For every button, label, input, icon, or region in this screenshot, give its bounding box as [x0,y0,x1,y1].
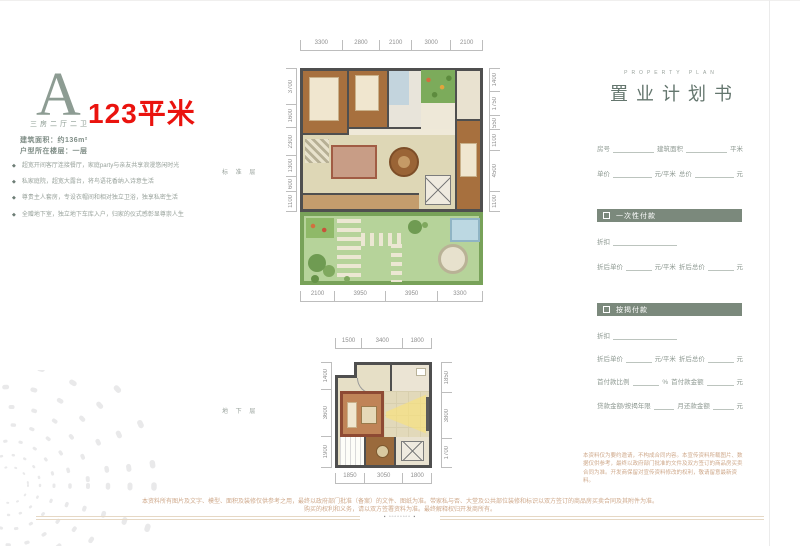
section-title: 一次性付款 [616,211,656,221]
eyebrow-text: PROPERTY PLAN [580,70,762,76]
stepping-stone-path [391,244,402,282]
basement-floor-plan [335,362,432,468]
blank-field [707,378,734,386]
discounted-price-row: 折后单价 元/平米 折后总价 元 [597,353,743,363]
wardrobe [340,437,364,465]
basement-hall [384,391,429,437]
field-label: 建筑面积 [657,143,683,153]
field-label: 折扣 [597,330,610,340]
mortgage-payment-checkbox[interactable] [603,306,610,313]
dining-table [389,147,419,177]
dim-label: 2300 [288,135,294,148]
blank-field [695,170,734,178]
projector-light-cone [386,393,426,435]
dim-label: 1400 [492,73,498,86]
unit-label: 平米 [730,143,743,153]
dim-label: 3950 [354,291,367,298]
discounted-price-row: 折后单价 元/平米 折后总价 元 [597,261,743,271]
blank-field [713,402,734,410]
dim-strip-bottom: 2100 3950 3950 3300 [300,291,483,302]
dim-label: 1800 [411,338,424,345]
bed [355,75,379,111]
dim-label: 1400 [323,369,329,382]
dim-label: 3000 [424,40,437,47]
dim-label: 600 [288,179,294,189]
coffee-table [361,406,377,424]
blank-field [708,355,734,363]
bathroom-1 [389,71,423,129]
price-row: 单价 元/平米 总价 元 [597,168,743,178]
toilet [416,368,426,376]
page-fold-line [769,0,770,546]
field-label: 折后单价 [597,261,623,271]
dim-label: 2100 [389,40,402,47]
mortgage-payment-section-bar: 按揭付款 [597,303,742,316]
basement-bathroom [390,365,429,393]
equipment-room [396,437,429,465]
loan-row: 贷款金额/按揭年限 月还款金额 元 [597,400,743,410]
list-item: ◆尊贵主人套房，专设衣帽间和相对独立卫浴，独享私密生活 [12,195,227,202]
blank-field [613,332,677,340]
dim-label: 550 [492,118,498,128]
dim-label: 3600 [323,406,329,419]
field-label: 折后总价 [679,353,705,363]
field-label: 单价 [597,168,610,178]
dim-strip-top: 1500 3400 1800 [335,338,432,349]
tea-table [376,445,389,458]
dim-label: 1100 [492,195,498,208]
stair-shaft [425,175,451,205]
brochure-page: A 123平米 三房二厅二卫 建筑面积：约136m² 户型所在楼层：一层 ◆超宽… [0,0,800,546]
field-label: 房号 [597,143,610,153]
page-title: 置业计划书 [580,80,762,106]
dim-label: 4500 [492,164,498,177]
bullet-text: 全赠地下室，独立地下车库入户，归家的仪式感彰显尊崇人生 [22,212,184,219]
shrub-cluster [308,254,326,272]
dim-label: 1300 [288,159,294,172]
blank-field [708,263,734,271]
round-patio [438,244,468,274]
unit-type-letter: A [36,64,81,126]
footer-disclaimer-line: 本资料所有图片及文字、模型、面积及装修仅供参考之用，最终以政府部门批准（备案）的… [140,498,660,506]
blank-field [633,378,660,386]
master-bedroom [455,121,480,209]
dim-strip-left: 3700 1600 2300 1300 600 1100 [286,68,297,212]
bullet-text: 超宽开间客厅连接餐厅，家庭party与亲友共享浪漫悠闲时光 [22,163,179,170]
unit-label: 元 [737,168,744,178]
dim-label: 3800 [444,409,450,422]
dim-label: 3400 [376,338,389,345]
dim-label: 3300 [315,40,328,47]
private-garden [300,212,483,285]
dim-strip-right: 1850 3800 1700 [441,362,452,468]
unit-label: 元 [737,376,744,386]
water-feature [450,218,480,242]
terrace-deck [303,193,419,209]
dim-label: 3950 [405,291,418,298]
list-item: ◆私家庭院，超宽大露台，将鸟语花香纳入诗意生活 [12,179,227,186]
dim-label: 2800 [354,40,367,47]
layout-label: 三房二厅二卫 [30,119,90,129]
entry-mat [305,139,329,163]
field-label: 首付款金额 [671,376,704,386]
field-label: 总价 [679,168,692,178]
bullet-text: 私家庭院，超宽大露台，将鸟语花香纳入诗意生活 [22,179,154,186]
flower-bed [306,218,334,238]
dim-label: 2100 [311,291,324,298]
unit-label: 元/平米 [655,168,676,178]
dim-strip-left: 1400 3600 1900 [321,362,332,468]
downpayment-row: 首付款比例 % 首付款金额 元 [597,376,743,386]
field-label: 月还款金额 [677,400,710,410]
projection-screen [426,397,429,431]
field-label: 折扣 [597,236,610,246]
area-annotation: 123平米 [88,92,196,132]
unit-label: 元 [737,400,744,410]
equipment-box [401,441,424,461]
dim-strip-top: 3300 2800 2100 3000 2100 [300,40,483,51]
bed [460,143,477,177]
bathroom-2 [455,71,480,121]
planter-box [421,70,455,103]
field-label: 贷款金额/按揭年限 [597,400,651,410]
bed [309,77,339,121]
tea-room [364,437,396,465]
top-hairline [0,0,800,1]
dim-label: 1900 [323,445,329,458]
right-disclaimer: 本资料仅为要约邀请，不构成合同内容。本宣传资料所载图片、数据仅供参考，最终以政府… [583,452,743,485]
discount-row: 折扣 [597,330,677,340]
dim-label: 1750 [492,97,498,110]
dim-label: 3700 [288,80,294,93]
corner-notch [335,362,357,378]
dim-label: 3050 [377,473,390,480]
blank-field [686,145,727,153]
field-label: 折后单价 [597,353,623,363]
one-time-payment-section-bar: 一次性付款 [597,209,742,222]
bullet-diamond-icon: ◆ [12,163,16,170]
dim-label: 1850 [444,371,450,384]
dim-label: 2100 [460,40,473,47]
dim-label: 1700 [444,446,450,459]
bedroom-2 [349,71,389,129]
dim-label: 1600 [288,109,294,122]
dim-label: 1100 [288,195,294,208]
field-label: 折后总价 [679,261,705,271]
room-number-row: 房号 建筑面积 平米 [597,143,743,153]
list-item: ◆全赠地下室，独立地下车库入户，归家的仪式感彰显尊崇人生 [12,212,227,219]
unit-label: 元 [737,353,744,363]
blank-field [613,170,652,178]
table-center [398,156,410,168]
bullet-diamond-icon: ◆ [12,212,16,219]
media-room [340,391,384,437]
field-label: 首付款比例 [597,376,630,386]
rule-ornament-icon: ▪ ▫▫▫▫▫▫▫▫ ▪ [360,512,440,522]
bedroom-1 [303,71,349,135]
blank-field [654,402,675,410]
stepping-stone-path [337,219,361,281]
standard-floor-label: 标 准 层 [222,167,258,176]
unit-label: 元/平米 [655,353,676,363]
shrub-cluster [408,220,422,234]
blank-field [613,238,677,246]
shower [389,71,409,105]
bullet-text: 尊贵主人套房，专设衣帽间和相对独立卫浴，独享私密生活 [22,195,178,202]
list-item: ◆超宽开间客厅连接餐厅，家庭party与亲友共享浪漫悠闲时光 [12,163,227,170]
blank-field [613,145,654,153]
living-rug [331,145,377,179]
discount-row: 折扣 [597,236,677,246]
standard-floor-plan [300,68,483,212]
section-title: 按揭付款 [616,305,648,315]
sofa [347,402,357,428]
basement-label: 地 下 层 [222,406,258,415]
blank-field [626,355,652,363]
built-area-line: 建筑面积：约136m² [20,135,88,145]
unit-label: 元 [737,261,744,271]
dim-strip-bottom: 1850 3050 1800 [335,473,432,484]
floor-line: 户型所在楼层：一层 [20,146,88,156]
dim-label: 1100 [492,134,498,147]
blank-field [626,263,652,271]
bullet-diamond-icon: ◆ [12,179,16,186]
one-time-payment-checkbox[interactable] [603,212,610,219]
unit-label: % [662,379,668,386]
entry-hall [421,103,455,129]
dim-label: 3300 [453,291,466,298]
dim-label: 1850 [343,473,356,480]
selling-points-list: ◆超宽开间客厅连接餐厅，家庭party与亲友共享浪漫悠闲时光 ◆私家庭院，超宽大… [12,163,227,228]
living-dining-room [303,135,455,209]
unit-label: 元/平米 [655,261,676,271]
dim-label: 1800 [411,473,424,480]
dim-strip-right: 1400 1750 550 1100 4500 1100 [489,68,500,212]
bullet-diamond-icon: ◆ [12,195,16,202]
dim-label: 1500 [342,338,355,345]
